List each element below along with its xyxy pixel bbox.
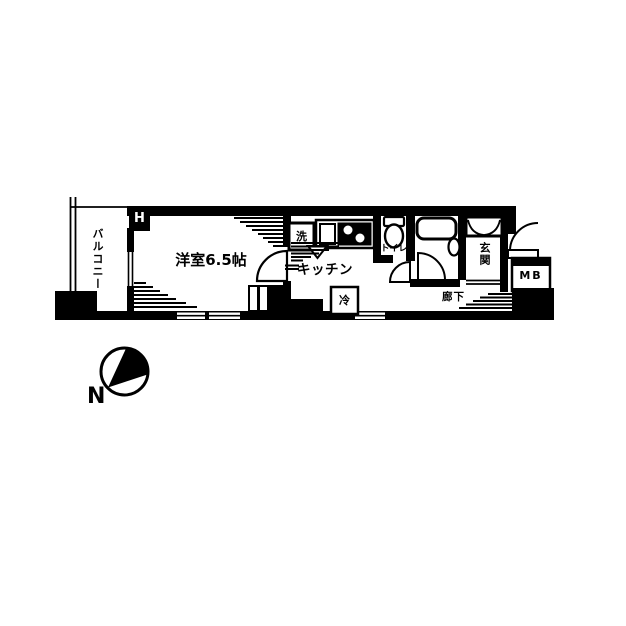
shoe-closet [466, 217, 502, 236]
wall-room-left-lower [127, 286, 134, 311]
bath-door-arc [418, 253, 445, 280]
kitchen-label: キッチン [290, 263, 360, 278]
washer-label: 洗 [289, 223, 314, 250]
hatch-room-top-right [234, 218, 283, 246]
kitchen-lower-block [291, 299, 323, 311]
fridge-label: 冷 [331, 287, 358, 314]
wall-toilet-bath [406, 216, 415, 261]
compass-icon [101, 348, 148, 395]
sink-icon [320, 224, 335, 244]
wall-top [127, 206, 516, 216]
hanger-mark-label: H [129, 206, 150, 231]
closet-block [268, 285, 291, 311]
meter-box-label: MB [512, 269, 550, 282]
balcony-label: バルコニー [92, 228, 103, 291]
wall-bottom [97, 311, 554, 320]
compass-north-label: N [87, 386, 105, 408]
floor-plan-drawing [0, 0, 626, 626]
hatch-room-bottom-left [134, 283, 197, 307]
room-kitchen-door-arc [257, 251, 287, 281]
corridor-label: 廊下 [442, 292, 465, 303]
room-label: 洋室6.5帖 [168, 252, 254, 268]
closet-bifold-door [249, 286, 258, 311]
balcony-window [129, 252, 133, 286]
wall-entrance-right [500, 228, 508, 292]
stove-icon [338, 223, 371, 245]
wall-toilet-stub [373, 255, 393, 263]
stove-burner-icon [344, 226, 353, 235]
floor-plan-image: バルコニー H 洋室6.5帖 洗 キッチン 冷 トイレ 玄関 MB 廊下 N [0, 0, 626, 626]
entrance-label: 玄関 [479, 242, 490, 266]
wall-room-left-upper [127, 228, 134, 252]
closet-bifold-door [259, 286, 268, 311]
toilet-label: トイレ [379, 244, 409, 254]
bathtub-icon [417, 218, 456, 239]
stove-burner-icon [356, 234, 365, 243]
hatch-corridor [459, 294, 512, 308]
toilet-door-arc [390, 262, 410, 282]
washbasin-icon [449, 239, 460, 256]
